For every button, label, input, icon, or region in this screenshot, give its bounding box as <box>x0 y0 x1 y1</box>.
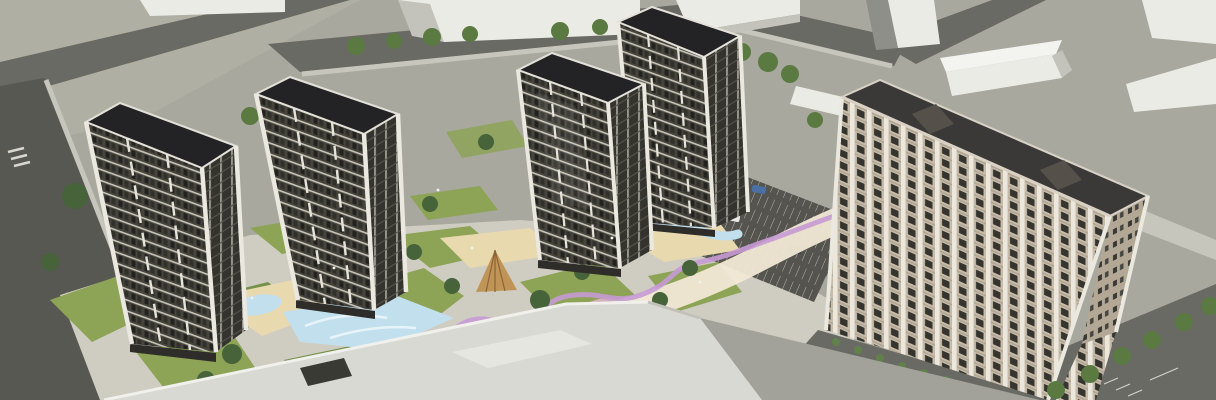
bush <box>854 346 862 354</box>
aerial-render <box>0 0 1216 400</box>
tree <box>423 28 441 46</box>
bush <box>832 338 840 346</box>
tree <box>682 260 698 276</box>
tree <box>406 244 422 260</box>
tree <box>462 26 478 42</box>
tree <box>62 183 88 209</box>
massing-box <box>1142 0 1216 44</box>
tree <box>758 52 778 72</box>
tree <box>241 107 259 125</box>
lamp <box>333 267 336 270</box>
lamp <box>699 281 702 284</box>
tree <box>386 33 402 49</box>
tree <box>1143 331 1161 349</box>
lamp <box>251 297 254 300</box>
tree <box>1081 365 1099 383</box>
tree <box>41 253 59 271</box>
tree <box>781 65 799 83</box>
render-viewport <box>0 0 1216 400</box>
tree <box>422 196 438 212</box>
tree <box>478 134 494 150</box>
tree <box>444 278 460 294</box>
tree <box>1175 313 1193 331</box>
tree <box>551 22 569 40</box>
tree <box>1047 381 1065 399</box>
tree <box>222 344 242 364</box>
tree <box>347 37 365 55</box>
lamp <box>471 247 474 250</box>
lamp <box>611 237 614 240</box>
tree <box>592 19 608 35</box>
tree <box>1113 347 1131 365</box>
tower-3 <box>518 53 652 277</box>
tree <box>807 112 823 128</box>
lamp <box>437 189 440 192</box>
